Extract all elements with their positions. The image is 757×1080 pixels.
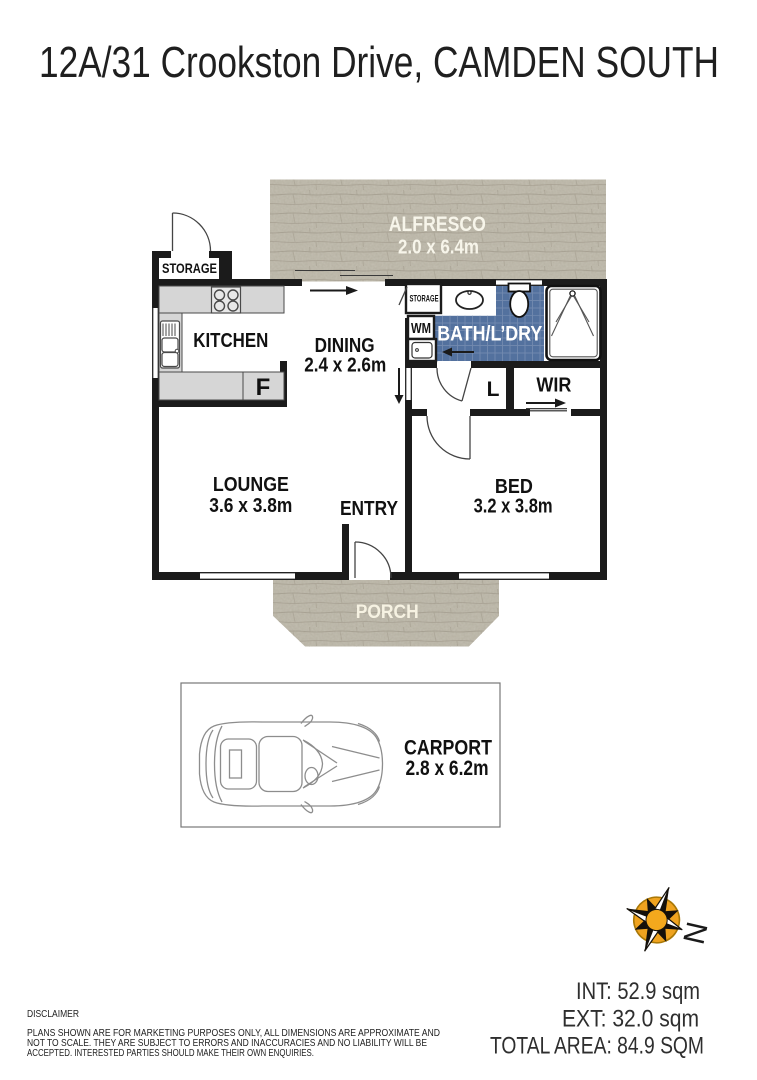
svg-text:STORAGE: STORAGE xyxy=(162,260,217,276)
svg-text:TOTAL AREA: 84.9 SQM: TOTAL AREA: 84.9 SQM xyxy=(490,1033,704,1060)
svg-text:L: L xyxy=(487,378,500,401)
svg-text:ACCEPTED. INTERESTED PARTIES S: ACCEPTED. INTERESTED PARTIES SHOULD MAKE… xyxy=(27,1048,314,1059)
svg-text:3.6 x 3.8m: 3.6 x 3.8m xyxy=(209,495,292,517)
svg-text:12A/31 Crookston Drive, CAMDEN: 12A/31 Crookston Drive, CAMDEN SOUTH xyxy=(39,38,719,87)
svg-text:BATH/L’DRY: BATH/L’DRY xyxy=(437,323,542,346)
svg-text:INT: 52.9 sqm: INT: 52.9 sqm xyxy=(576,978,700,1005)
svg-text:WIR: WIR xyxy=(536,375,571,397)
svg-text:KITCHEN: KITCHEN xyxy=(193,330,268,352)
svg-text:3.2 x 3.8m: 3.2 x 3.8m xyxy=(474,496,553,518)
svg-text:DISCLAIMER: DISCLAIMER xyxy=(27,1009,79,1020)
svg-text:WM: WM xyxy=(411,320,431,337)
svg-text:2.8 x 6.2m: 2.8 x 6.2m xyxy=(406,757,489,780)
svg-text:EXT: 32.0 sqm: EXT: 32.0 sqm xyxy=(562,1006,699,1033)
svg-text:LOUNGE: LOUNGE xyxy=(213,474,289,496)
svg-text:2.0 x 6.4m: 2.0 x 6.4m xyxy=(398,237,479,259)
svg-text:STORAGE: STORAGE xyxy=(410,294,439,304)
svg-text:PORCH: PORCH xyxy=(356,601,419,623)
svg-text:2.4 x 2.6m: 2.4 x 2.6m xyxy=(304,355,386,377)
svg-text:BED: BED xyxy=(495,476,533,498)
svg-text:DINING: DINING xyxy=(315,335,375,357)
svg-text:ALFRESCO: ALFRESCO xyxy=(389,213,486,236)
svg-text:ENTRY: ENTRY xyxy=(340,498,399,520)
svg-text:F: F xyxy=(256,374,271,401)
